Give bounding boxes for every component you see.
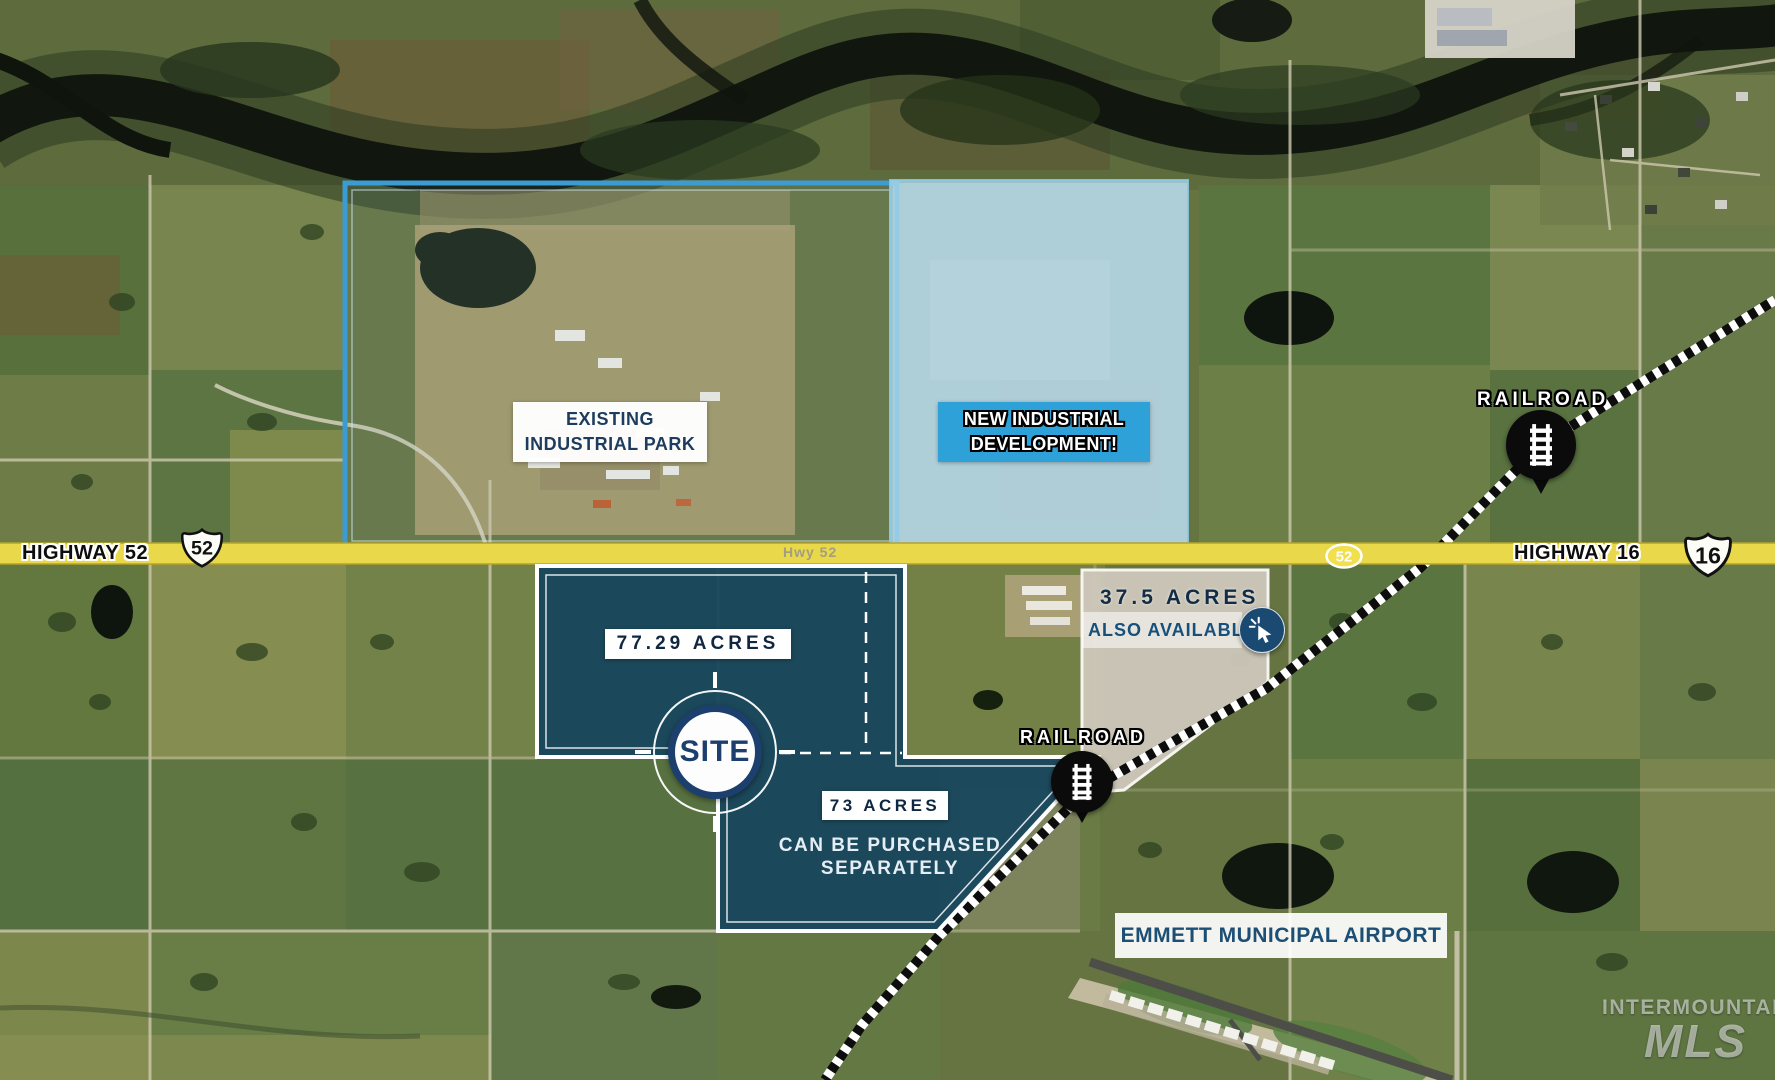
purchase-note: CAN BE PURCHASED SEPARATELY [760, 834, 1020, 880]
mls-watermark: INTERMOUNTAIN MLS [1602, 996, 1775, 1068]
acres-375-label: 37.5 ACRES [1100, 586, 1259, 610]
existing-park-label: EXISTING INDUSTRIAL PARK [513, 402, 707, 462]
new-development-label: NEW INDUSTRIAL DEVELOPMENT! [938, 402, 1150, 462]
purchase-note-line1: CAN BE PURCHASED [760, 834, 1020, 857]
existing-park-line2: INDUSTRIAL PARK [525, 432, 696, 457]
route-52-marker: 52 [1324, 542, 1364, 575]
railroad-label-north: RAILROAD [1477, 389, 1609, 411]
railroad-pin-north [1506, 410, 1576, 494]
highway-line [0, 543, 1775, 564]
listing-map: { "colors": { "parcel_navy": "#174863", … [0, 0, 1775, 1080]
highway-16-shield: 16 [1683, 531, 1733, 584]
highway-16-label: HIGHWAY 16 [1514, 542, 1640, 565]
shield-16-number: 16 [1695, 542, 1721, 568]
acres-7729-label: 77.29 ACRES [605, 629, 791, 659]
click-cursor-badge [1239, 607, 1285, 653]
railroad-label-south: RAILROAD [1020, 727, 1147, 748]
highway-52-label: HIGHWAY 52 [22, 542, 148, 565]
new-development-line1: NEW INDUSTRIAL [964, 407, 1124, 432]
hwy-52-road-name: Hwy 52 [783, 544, 837, 560]
acres-73-label: 73 ACRES [822, 791, 948, 820]
satellite-basemap [0, 0, 1775, 1080]
facility-north [1425, 0, 1575, 58]
airport-label: EMMETT MUNICIPAL AIRPORT [1115, 913, 1447, 958]
railroad-track-icon [1527, 423, 1555, 467]
also-available-label: ALSO AVAILABLE [1082, 612, 1242, 648]
railroad-pin-south [1051, 751, 1113, 823]
existing-park-outline [345, 183, 897, 548]
route-52-number: 52 [1336, 549, 1353, 566]
site-marker: SITE [635, 672, 795, 832]
site-badge: SITE [668, 705, 762, 799]
purchase-note-line2: SEPARATELY [760, 857, 1020, 880]
watermark-line2: MLS [1644, 1014, 1775, 1068]
new-development-overlay [890, 180, 1188, 558]
highway-52-shield: 52 [180, 527, 224, 574]
railroad-track-icon [1070, 763, 1094, 801]
cursor-click-icon [1247, 615, 1277, 645]
shield-52-number: 52 [191, 538, 213, 560]
new-development-line2: DEVELOPMENT! [971, 432, 1118, 457]
existing-park-line1: EXISTING [566, 407, 654, 432]
